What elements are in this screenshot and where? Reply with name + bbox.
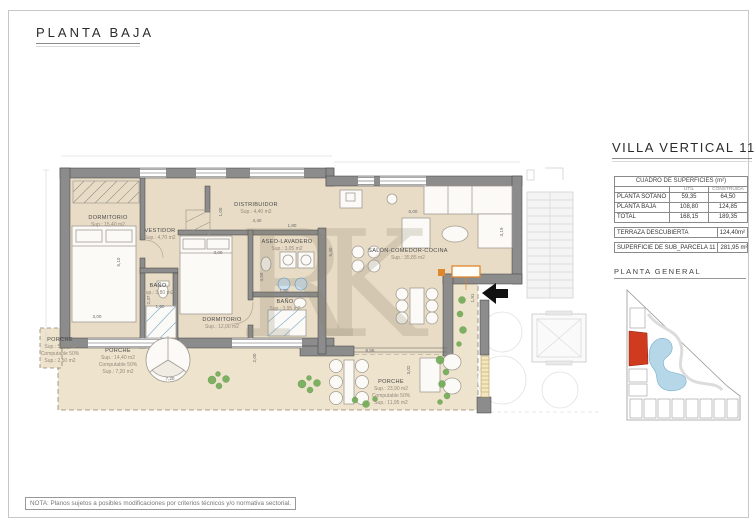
siteplan-parcel bbox=[629, 384, 647, 396]
highlighted-parcel bbox=[629, 331, 648, 366]
svg-text:Sup.: 2,50 m2: Sup.: 2,50 m2 bbox=[44, 358, 75, 364]
drawing-sheet: { "sheet": { "title": "PLANTA BAJA", "no… bbox=[0, 0, 756, 528]
siteplan-title: PLANTA GENERAL bbox=[614, 267, 752, 276]
table-row: TOTAL 168,15 189,35 bbox=[615, 213, 748, 223]
svg-text:Sup.: 3,80 m2: Sup.: 3,80 m2 bbox=[142, 290, 173, 296]
exterior-elevator bbox=[532, 311, 586, 365]
room-label: PORCHE bbox=[47, 337, 73, 343]
svg-text:6,00: 6,00 bbox=[409, 209, 418, 214]
svg-text:3,02: 3,02 bbox=[406, 365, 411, 374]
surface-table: CUADRO DE SUPERFICIES (m²) UTIL CONSTRUI… bbox=[614, 176, 748, 223]
siteplan-svg bbox=[614, 284, 748, 426]
svg-text:4,40: 4,40 bbox=[253, 218, 262, 223]
siteplan-parcel bbox=[629, 369, 647, 382]
svg-text:Sup.: 14,40 m2: Sup.: 14,40 m2 bbox=[101, 355, 135, 361]
svg-text:1,60: 1,60 bbox=[156, 304, 165, 309]
terraza-value: 124,40m² bbox=[717, 228, 747, 237]
svg-text:1,80: 1,80 bbox=[280, 288, 289, 293]
room-label: DORMITORIO bbox=[88, 215, 128, 221]
svg-text:4,50: 4,50 bbox=[259, 272, 264, 281]
svg-text:3,00: 3,00 bbox=[93, 314, 102, 319]
svg-text:Sup.: 23,90 m2: Sup.: 23,90 m2 bbox=[374, 386, 408, 392]
room-label: VESTIDOR bbox=[145, 228, 176, 234]
bed-2 bbox=[180, 236, 232, 314]
svg-text:Computable 50%: Computable 50% bbox=[99, 362, 138, 368]
svg-text:Sup.: 15,40 m2: Sup.: 15,40 m2 bbox=[91, 222, 125, 228]
room-label: SALÓN-COMEDOR-COCINA bbox=[368, 247, 448, 254]
subparcela-box: SUPERFICIE DE SUB_PARCELA 11 281,95 m² bbox=[614, 242, 748, 253]
room-label: DISTRIBUIDOR bbox=[234, 202, 278, 208]
subparcela-value: 281,95 m² bbox=[717, 243, 749, 252]
svg-text:1,91: 1,91 bbox=[470, 293, 475, 302]
svg-text:2,00: 2,00 bbox=[252, 353, 257, 362]
svg-text:1,80: 1,80 bbox=[288, 223, 297, 228]
room-label: PORCHE bbox=[105, 348, 131, 354]
table-row: PLANTA SOTANO 59,35 64,50 bbox=[615, 193, 748, 203]
svg-text:8,55: 8,55 bbox=[366, 348, 375, 353]
svg-text:Sup.: 7,20 m2: Sup.: 7,20 m2 bbox=[102, 369, 133, 375]
room-label: PORCHE bbox=[378, 379, 404, 385]
siteplan-parcel bbox=[630, 308, 645, 328]
svg-text:7,20: 7,20 bbox=[166, 376, 175, 381]
villa-title-underline bbox=[612, 158, 752, 162]
svg-text:3,00: 3,00 bbox=[214, 250, 223, 255]
subparcela-label: SUPERFICIE DE SUB_PARCELA 11 bbox=[615, 243, 717, 252]
svg-text:Sup.: 3,05 m2: Sup.: 3,05 m2 bbox=[271, 246, 302, 252]
svg-text:Computable 50%: Computable 50% bbox=[372, 393, 411, 399]
room-label: BAÑO bbox=[276, 298, 293, 305]
louver-strip bbox=[481, 356, 489, 397]
table-row: PLANTA BAJA 108,80 124,85 bbox=[615, 203, 748, 213]
info-panel: VILLA VERTICAL 11 CUADRO DE SUPERFICIES … bbox=[612, 140, 752, 426]
siteplan-bottom-parcels bbox=[630, 399, 738, 418]
svg-text:Sup.: 4,70 m2: Sup.: 4,70 m2 bbox=[144, 235, 175, 241]
svg-text:Sup.: 4,40 m2: Sup.: 4,40 m2 bbox=[240, 209, 271, 215]
note-box: NOTA: Planos sujetos a posibles modifica… bbox=[25, 497, 296, 510]
svg-text:2,37: 2,37 bbox=[146, 295, 151, 304]
dining-set-indoor bbox=[396, 288, 438, 324]
svg-text:Sup.: 12,00 m2: Sup.: 12,00 m2 bbox=[205, 324, 239, 330]
exterior-stair bbox=[527, 168, 573, 298]
surface-table-title: CUADRO DE SUPERFICIES (m²) bbox=[615, 177, 748, 187]
room-label: ASEO-LAVADERO bbox=[262, 239, 313, 245]
room-label: DORMITORIO bbox=[202, 317, 242, 323]
svg-text:5,40: 5,40 bbox=[328, 247, 333, 256]
bed-1 bbox=[72, 226, 136, 322]
room-label: BAÑO bbox=[149, 282, 166, 289]
col-construida: CONSTRUIDA bbox=[709, 186, 748, 193]
svg-text:Sup.: 3,95 m2: Sup.: 3,95 m2 bbox=[269, 306, 300, 312]
terraza-label: TERRAZA DESCUBIERTA bbox=[615, 228, 717, 237]
note-text: NOTA: Planos sujetos a posibles modifica… bbox=[30, 500, 291, 507]
svg-text:3,19: 3,19 bbox=[499, 227, 504, 236]
svg-text:Sup.: 5,00 m2: Sup.: 5,00 m2 bbox=[44, 344, 75, 350]
villa-title: VILLA VERTICAL 11 bbox=[612, 140, 752, 155]
siteplan-underline bbox=[614, 278, 746, 280]
svg-text:Sup.: 35,85 m2: Sup.: 35,85 m2 bbox=[391, 255, 425, 261]
svg-text:5,10: 5,10 bbox=[116, 257, 121, 266]
svg-text:Computable 50%: Computable 50% bbox=[41, 351, 80, 357]
terraza-box: TERRAZA DESCUBIERTA 124,40m² bbox=[614, 227, 748, 238]
svg-text:Sup.: 11,95 m2: Sup.: 11,95 m2 bbox=[374, 400, 408, 406]
svg-text:1,00: 1,00 bbox=[218, 207, 223, 216]
